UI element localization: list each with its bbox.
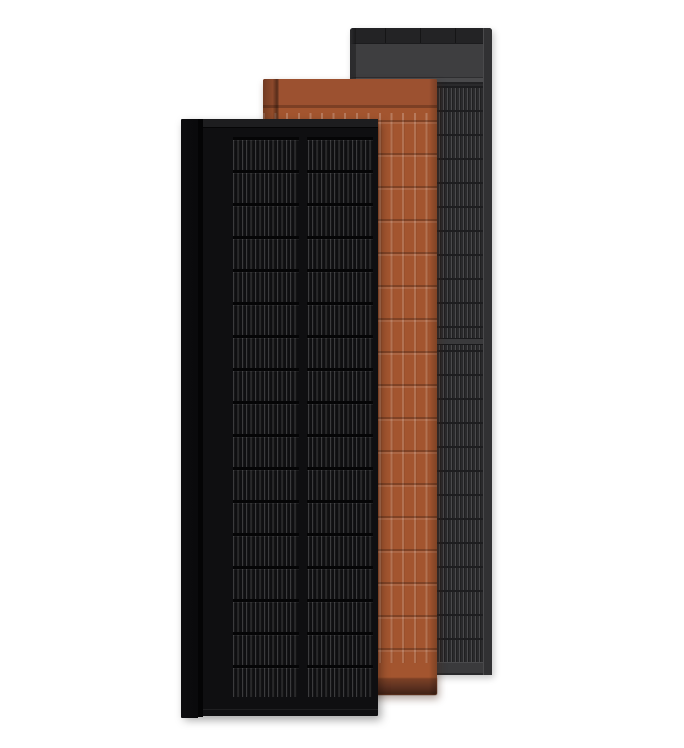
gray-panel-right-edge	[483, 28, 492, 675]
black-panel-top-frame	[203, 119, 378, 128]
black-panel-face	[203, 119, 378, 716]
gray-panel-header-band	[350, 44, 492, 77]
black-panel-bottom-frame-line	[203, 709, 378, 710]
terracotta-panel-right-edge	[429, 79, 437, 695]
black-panel-side-strip	[181, 119, 198, 718]
solar-panel-black-front	[181, 119, 378, 716]
black-panel-center-seam	[299, 137, 307, 697]
product-render-scene	[0, 0, 684, 748]
terracotta-panel-header-band	[263, 79, 437, 108]
gray-panel-top-cap	[350, 28, 492, 44]
